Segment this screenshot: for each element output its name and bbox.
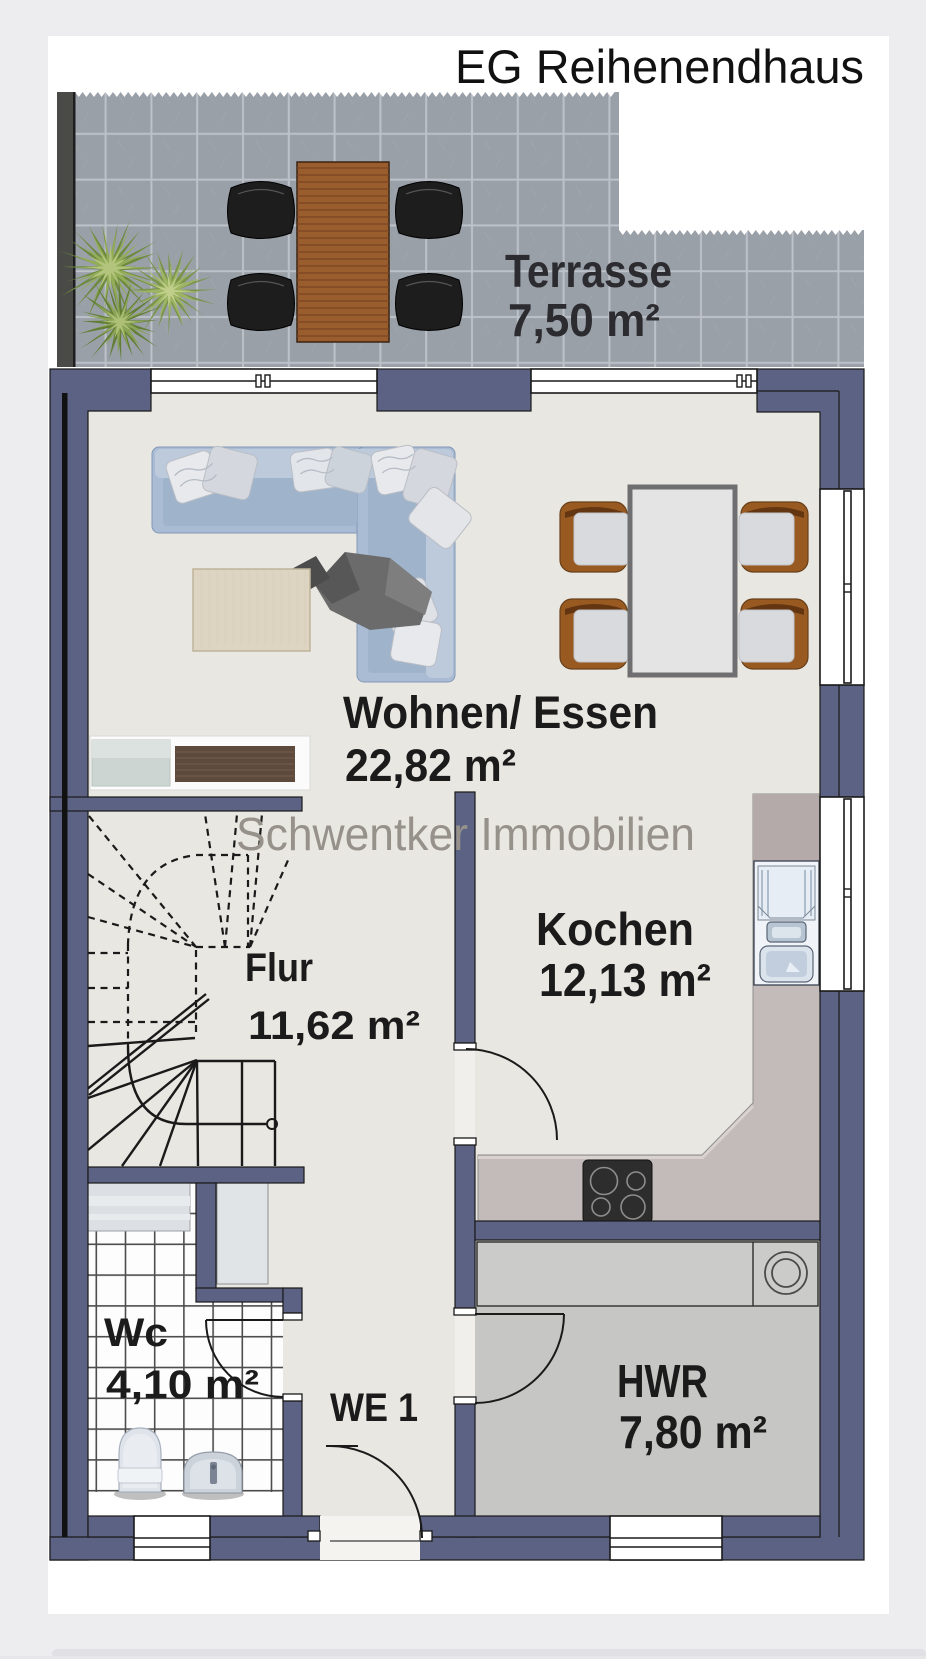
svg-text:Terrasse: Terrasse xyxy=(505,245,672,297)
svg-text:11,62 m²: 11,62 m² xyxy=(248,1004,420,1048)
svg-text:EG Reihenendhaus: EG Reihenendhaus xyxy=(455,40,864,93)
svg-text:Schwentker Immobilien: Schwentker Immobilien xyxy=(236,808,695,860)
svg-text:HWR: HWR xyxy=(617,1355,708,1407)
svg-text:7,80 m²: 7,80 m² xyxy=(619,1406,767,1458)
svg-text:7,50 m²: 7,50 m² xyxy=(508,294,660,346)
svg-text:Wc: Wc xyxy=(104,1311,168,1355)
svg-text:4,10 m²: 4,10 m² xyxy=(106,1363,259,1407)
svg-text:12,13 m²: 12,13 m² xyxy=(539,954,711,1006)
svg-text:22,82 m²: 22,82 m² xyxy=(345,740,516,791)
svg-text:Flur: Flur xyxy=(245,946,313,990)
svg-text:Kochen: Kochen xyxy=(536,903,694,955)
svg-text:Wohnen/ Essen: Wohnen/ Essen xyxy=(343,687,658,738)
svg-text:WE 1: WE 1 xyxy=(330,1386,418,1430)
